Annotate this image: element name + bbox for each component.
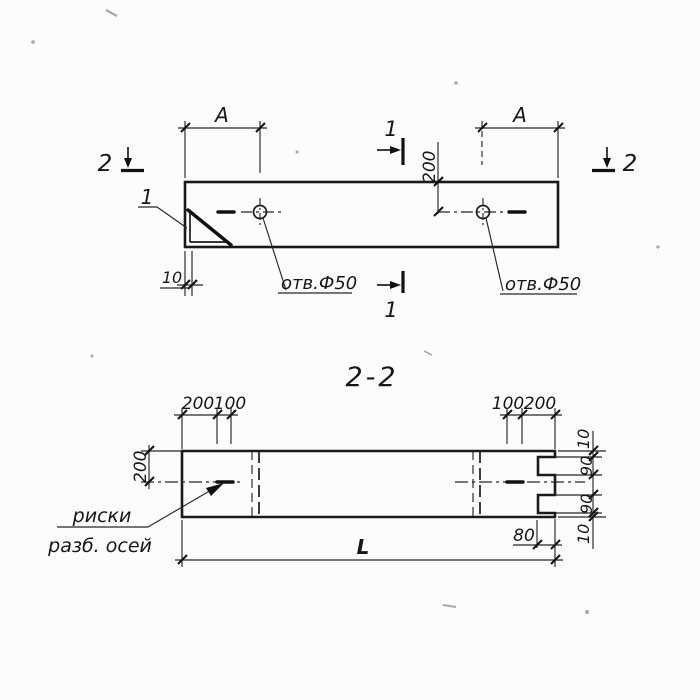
dim-200-top: 200 [420, 142, 443, 216]
dims-top-right: 100 200 [492, 394, 562, 449]
dim-length-label: L [357, 535, 370, 559]
section-title: 2-2 [345, 362, 398, 393]
section-marker-1-bottom: 1 [377, 271, 403, 322]
hole-note-left-label: отв.Ф50 [281, 273, 357, 294]
detail-callout: 1 [138, 185, 187, 228]
dim-200-label: 200 [524, 394, 556, 414]
dim-10-left-label: 10 [162, 268, 182, 287]
arrowhead-right [390, 146, 401, 154]
dim-a-right-label: A [511, 103, 527, 127]
dim-90-upper-label: 90 [577, 456, 596, 476]
section-marker-2-right: 2 [592, 147, 637, 177]
axes-note: риски разб. осей [47, 483, 224, 557]
dim-10-left: 10 [160, 251, 203, 296]
beam-outline [185, 182, 558, 247]
section-marker-2-left: 2 [98, 147, 144, 177]
dim-200-top-label: 200 [420, 151, 440, 183]
dim-length-l: L [175, 519, 563, 567]
dim-10-top-label: 10 [574, 429, 593, 449]
dim-a-right: A [475, 103, 565, 178]
arrowhead-leader [206, 483, 224, 496]
dim-10-bottom-label: 10 [574, 524, 593, 544]
arrowhead-down [603, 158, 611, 168]
technical-drawing: 1 A A 200 [0, 0, 700, 700]
detail-callout-label: 1 [141, 185, 154, 209]
section-outline [182, 451, 555, 517]
hole-right [438, 198, 525, 226]
hole-note-right: отв.Ф50 [486, 218, 581, 295]
dims-top-left: 200 100 [174, 394, 246, 449]
hidden-lines-left [252, 451, 259, 517]
section-marker-1-top: 1 [377, 117, 403, 165]
section-marker-1-top-label: 1 [384, 117, 397, 141]
dim-100-label: 100 [492, 394, 524, 414]
dim-200-side-label: 200 [131, 451, 151, 483]
hole-note-left: отв.Ф50 [263, 218, 357, 294]
axes-note-line1: риски [72, 505, 132, 527]
section-marker-2-right-label: 2 [623, 151, 638, 177]
dim-100-label: 100 [214, 394, 246, 414]
arrowhead-right [390, 281, 401, 289]
hidden-lines-right [473, 451, 480, 517]
section-marker-1-bottom-label: 1 [384, 298, 397, 322]
axes-note-line2: разб. осей [47, 535, 152, 557]
dims-right-chain: 10 90 90 10 [556, 429, 606, 549]
corner-detail-triangle [188, 210, 231, 245]
dim-a-left: A [178, 103, 267, 178]
dim-a-left-label: A [213, 103, 229, 127]
arrowhead-down [124, 158, 132, 168]
section-marker-2-left-label: 2 [98, 151, 113, 177]
dim-80-label: 80 [513, 526, 535, 546]
hole-note-right-label: отв.Ф50 [505, 274, 581, 295]
hole-left [218, 198, 283, 226]
drawing-sheet: 1 A A 200 [0, 0, 700, 700]
section-view: 200 100 100 200 200 [47, 394, 606, 567]
top-view: 1 A A 200 [98, 103, 638, 322]
dim-200-label: 200 [182, 394, 214, 414]
dim-90-lower-label: 90 [577, 494, 596, 514]
